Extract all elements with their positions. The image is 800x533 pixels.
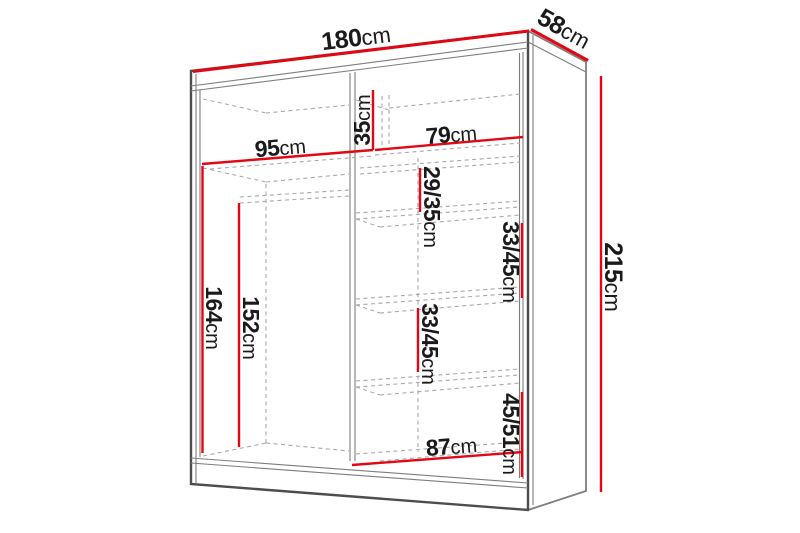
diagram-canvas: 180cm 58cm 215cm 95cm 35cm 79cm 29/35cm … (0, 0, 800, 533)
dim-label-bottom-shelf-gap: 45/51cm (498, 393, 524, 475)
dim-label-hanging-space-height: 164cm (201, 286, 227, 350)
dim-label-middle-shelf-gap-left: 33/45cm (417, 303, 443, 385)
dim-label-top-compartment-height: 35cm (349, 94, 375, 145)
side-panel (528, 31, 586, 510)
dim-label-middle-shelf-gap-right: 33/45cm (498, 221, 524, 303)
dim-label-upper-shelf-gap: 29/35cm (419, 166, 445, 248)
wardrobe-dimension-diagram: 180cm 58cm 215cm 95cm 35cm 79cm 29/35cm … (0, 0, 800, 533)
dim-label-total-height: 215cm (599, 242, 627, 312)
dim-label-rail-height: 152cm (238, 296, 264, 360)
